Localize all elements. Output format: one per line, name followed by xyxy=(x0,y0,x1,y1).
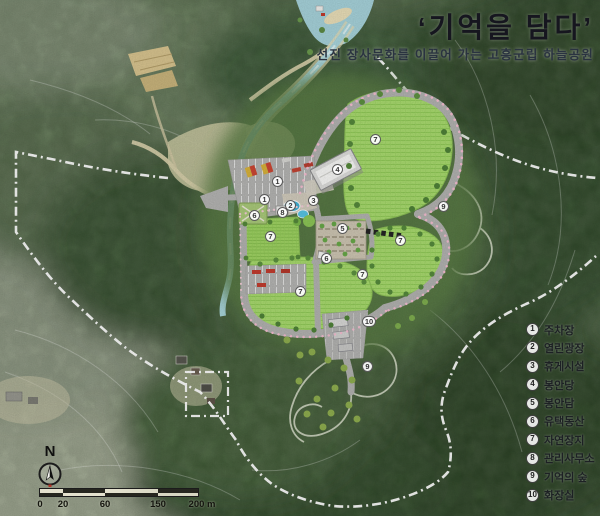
legend-label: 관리사무소 xyxy=(544,450,595,466)
scale-tick: 60 xyxy=(100,499,111,510)
legend-number: 5 xyxy=(526,397,539,410)
page-title: ‘기억을 담다’ xyxy=(418,6,594,46)
photo-grain xyxy=(0,0,600,516)
legend-item-charnel-wall: 5봉안담 xyxy=(526,397,595,410)
map-marker-4: 4 xyxy=(332,164,343,175)
legend-item-garden: 6유택동산 xyxy=(526,415,595,428)
legend-label: 자연장지 xyxy=(544,432,584,448)
map-marker-7: 7 xyxy=(295,286,306,297)
page-subtitle: 선진 장사문화를 이끌어 가는 고흥군립 하늘공원 xyxy=(317,44,594,63)
legend-label: 유택동산 xyxy=(544,413,584,429)
map-marker-7: 7 xyxy=(395,235,406,246)
legend-item-rest: 3휴게시설 xyxy=(526,360,595,373)
scale-tick: 200 m xyxy=(189,499,216,510)
legend-number: 10 xyxy=(526,489,539,502)
legend-number: 9 xyxy=(526,470,539,483)
map-marker-6: 6 xyxy=(249,210,260,221)
legend-label: 화장실 xyxy=(544,487,574,503)
scale-bar: 0 20 60 150 200 m xyxy=(30,485,215,513)
legend-label: 봉안당 xyxy=(544,377,574,393)
legend-number: 2 xyxy=(526,341,539,354)
legend-label: 열린광장 xyxy=(544,340,584,356)
legend-number: 6 xyxy=(526,415,539,428)
legend-label: 기억의 숲 xyxy=(544,469,588,485)
legend-item-office: 8관리사무소 xyxy=(526,452,595,465)
map-marker-8: 8 xyxy=(277,207,288,218)
legend-number: 3 xyxy=(526,360,539,373)
legend-item-charnel-house: 4봉안당 xyxy=(526,378,595,391)
legend-label: 휴게시설 xyxy=(544,358,584,374)
map-marker-10: 10 xyxy=(362,316,376,327)
legend-item-plaza: 2열린광장 xyxy=(526,341,595,354)
legend-number: 8 xyxy=(526,452,539,465)
map-marker-9: 9 xyxy=(438,201,449,212)
legend-item-memory-forest: 9기억의 숲 xyxy=(526,470,595,483)
screenshot-root: ‘기억을 담다’ 선진 장사문화를 이끌어 가는 고흥군립 하늘공원 1 1 2… xyxy=(0,0,600,516)
legend-label: 봉안담 xyxy=(544,395,574,411)
legend-item-parking: 1주차장 xyxy=(526,323,595,336)
legend-item-natural-burial: 7자연장지 xyxy=(526,433,595,446)
site-map-artwork xyxy=(0,0,600,516)
scale-tick: 20 xyxy=(58,499,69,510)
map-marker-7: 7 xyxy=(370,134,381,145)
map-marker-9: 9 xyxy=(362,361,373,372)
legend-number: 4 xyxy=(526,378,539,391)
map-marker-6: 6 xyxy=(321,253,332,264)
map-marker-3: 3 xyxy=(308,195,319,206)
legend: 1주차장 2열린광장 3휴게시설 4봉안당 5봉안담 6유택동산 7자연장지 8… xyxy=(526,323,595,502)
map-marker-1: 1 xyxy=(272,176,283,187)
legend-number: 1 xyxy=(526,323,539,336)
map-marker-7: 7 xyxy=(357,269,368,280)
legend-label: 주차장 xyxy=(544,322,574,338)
map-marker-7: 7 xyxy=(265,231,276,242)
map-marker-1: 1 xyxy=(259,194,270,205)
legend-number: 7 xyxy=(526,433,539,446)
north-label: N xyxy=(36,444,64,460)
legend-item-restroom: 10화장실 xyxy=(526,489,595,502)
map-marker-5: 5 xyxy=(337,223,348,234)
compass-icon xyxy=(36,460,64,488)
scale-bar-segments xyxy=(40,489,198,496)
scale-tick: 150 xyxy=(150,499,166,510)
scale-tick: 0 xyxy=(37,499,42,510)
